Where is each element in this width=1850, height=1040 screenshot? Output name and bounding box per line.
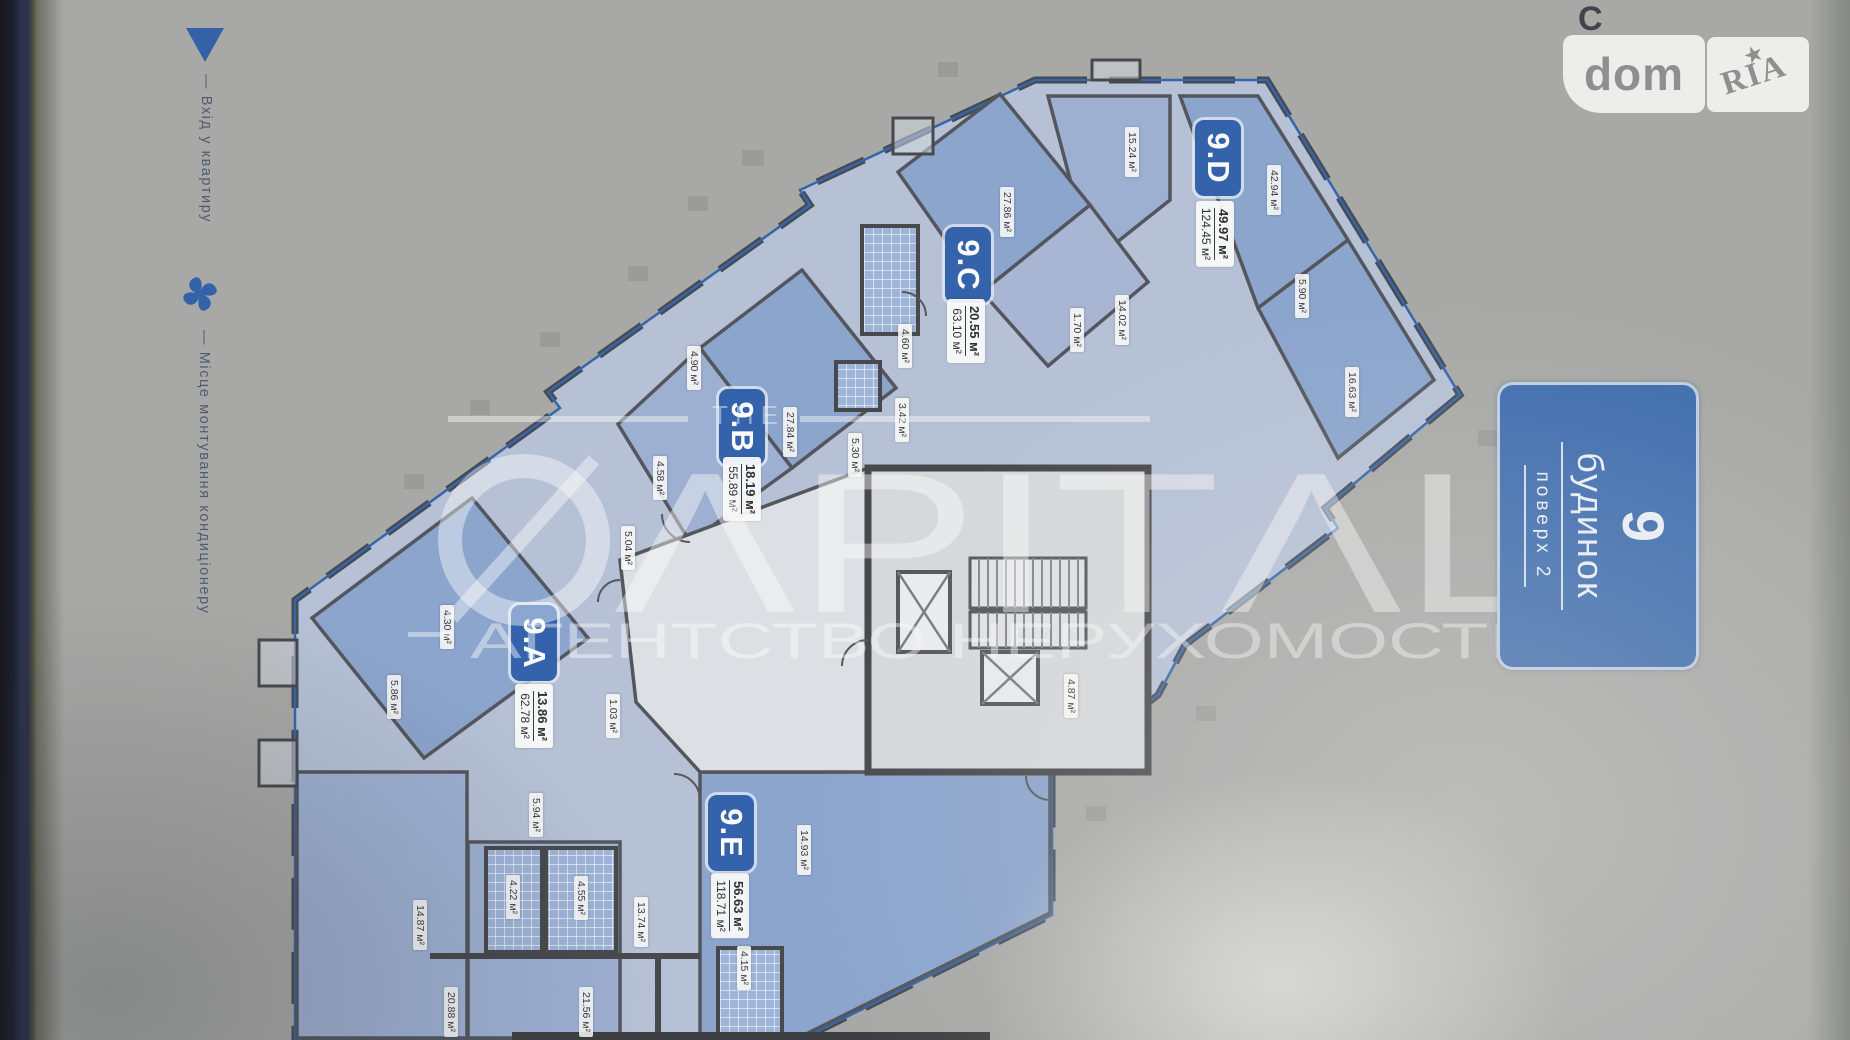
apartment-badge: 9.E — [708, 795, 754, 871]
dom-logo: dom — [1563, 35, 1705, 113]
room-area-label: 5.04 м² — [621, 526, 635, 570]
room-area-label: 14.02 м² — [1115, 295, 1129, 345]
room-area-label: 42.94 м² — [1267, 165, 1281, 215]
apartment-badge: 9.C — [945, 227, 991, 303]
room-area-label: 4.58 м² — [653, 456, 667, 500]
room-area-label: 5.94 м² — [529, 793, 543, 837]
building-number: 9 — [1614, 510, 1672, 542]
room-area-label: 4.87 м² — [1064, 674, 1078, 718]
apartment-areas-badge: 18.19 м²55.89 м² — [723, 457, 761, 521]
ria-logo: ★ RIA — [1707, 37, 1809, 112]
building-floor-badge: 9 будинок поверх 2 — [1497, 382, 1699, 670]
background-letter: С — [1578, 0, 1603, 39]
apartment-badge: 9.A — [511, 605, 557, 681]
room-area-label: 4.90 м² — [687, 346, 701, 390]
room-area-label: 4.15 м² — [737, 946, 751, 990]
room-area-label: 4.22 м² — [506, 875, 520, 919]
apartment-areas-badge: 56.63 м²118.71 м² — [711, 873, 749, 938]
legend-ac-label: — Місце монтування кондиціонеру — [196, 330, 212, 614]
ac-fan-icon — [178, 272, 222, 316]
room-area-label: 1.70 м² — [1070, 308, 1084, 352]
apartment-badge: 9.D — [1195, 120, 1241, 196]
apartment-badge: 9.B — [719, 389, 765, 465]
room-area-label: 4.55 м² — [574, 876, 588, 920]
apartment-areas-badge: 49.97 м²124.45 м² — [1196, 201, 1234, 267]
room-area-label: 5.86 м² — [387, 675, 401, 719]
apartment-areas-badge: 20.55 м²63.10 м² — [947, 299, 985, 363]
room-area-label: 3.42 м² — [895, 398, 909, 442]
room-area-label: 5.30 м² — [848, 433, 862, 477]
apartment-areas-badge: 13.86 м²62.78 м² — [515, 684, 553, 748]
building-label: будинок — [1562, 442, 1614, 609]
room-area-label: 27.86 м² — [1000, 187, 1014, 237]
floor-label: поверх 2 — [1525, 465, 1562, 586]
room-area-label: 16.63 м² — [1345, 367, 1359, 417]
legend-entrance-label: — Вхід у квартиру — [198, 74, 214, 223]
room-area-label: 21.56 м² — [579, 987, 593, 1037]
floorplan-photo: 42.94 м²15.24 м²14.02 м²5.90 м²16.63 м²2… — [0, 0, 1850, 1040]
room-area-label: 4.30 м² — [440, 605, 454, 649]
entrance-arrow-icon — [186, 28, 224, 62]
room-area-label: 14.87 м² — [413, 900, 427, 950]
stair-elevator-core — [868, 468, 1148, 772]
room-area-label: 14.93 м² — [797, 825, 811, 875]
room-area-label: 4.60 м² — [898, 324, 912, 368]
room-area-label: 5.90 м² — [1295, 274, 1309, 318]
room-area-label: 13.74 м² — [634, 897, 648, 947]
room-area-label: 1.03 м² — [606, 694, 620, 738]
room-area-label: 20.88 м² — [444, 987, 458, 1037]
room-area-label: 27.84 м² — [783, 407, 797, 457]
room-area-label: 15.24 м² — [1125, 127, 1139, 177]
